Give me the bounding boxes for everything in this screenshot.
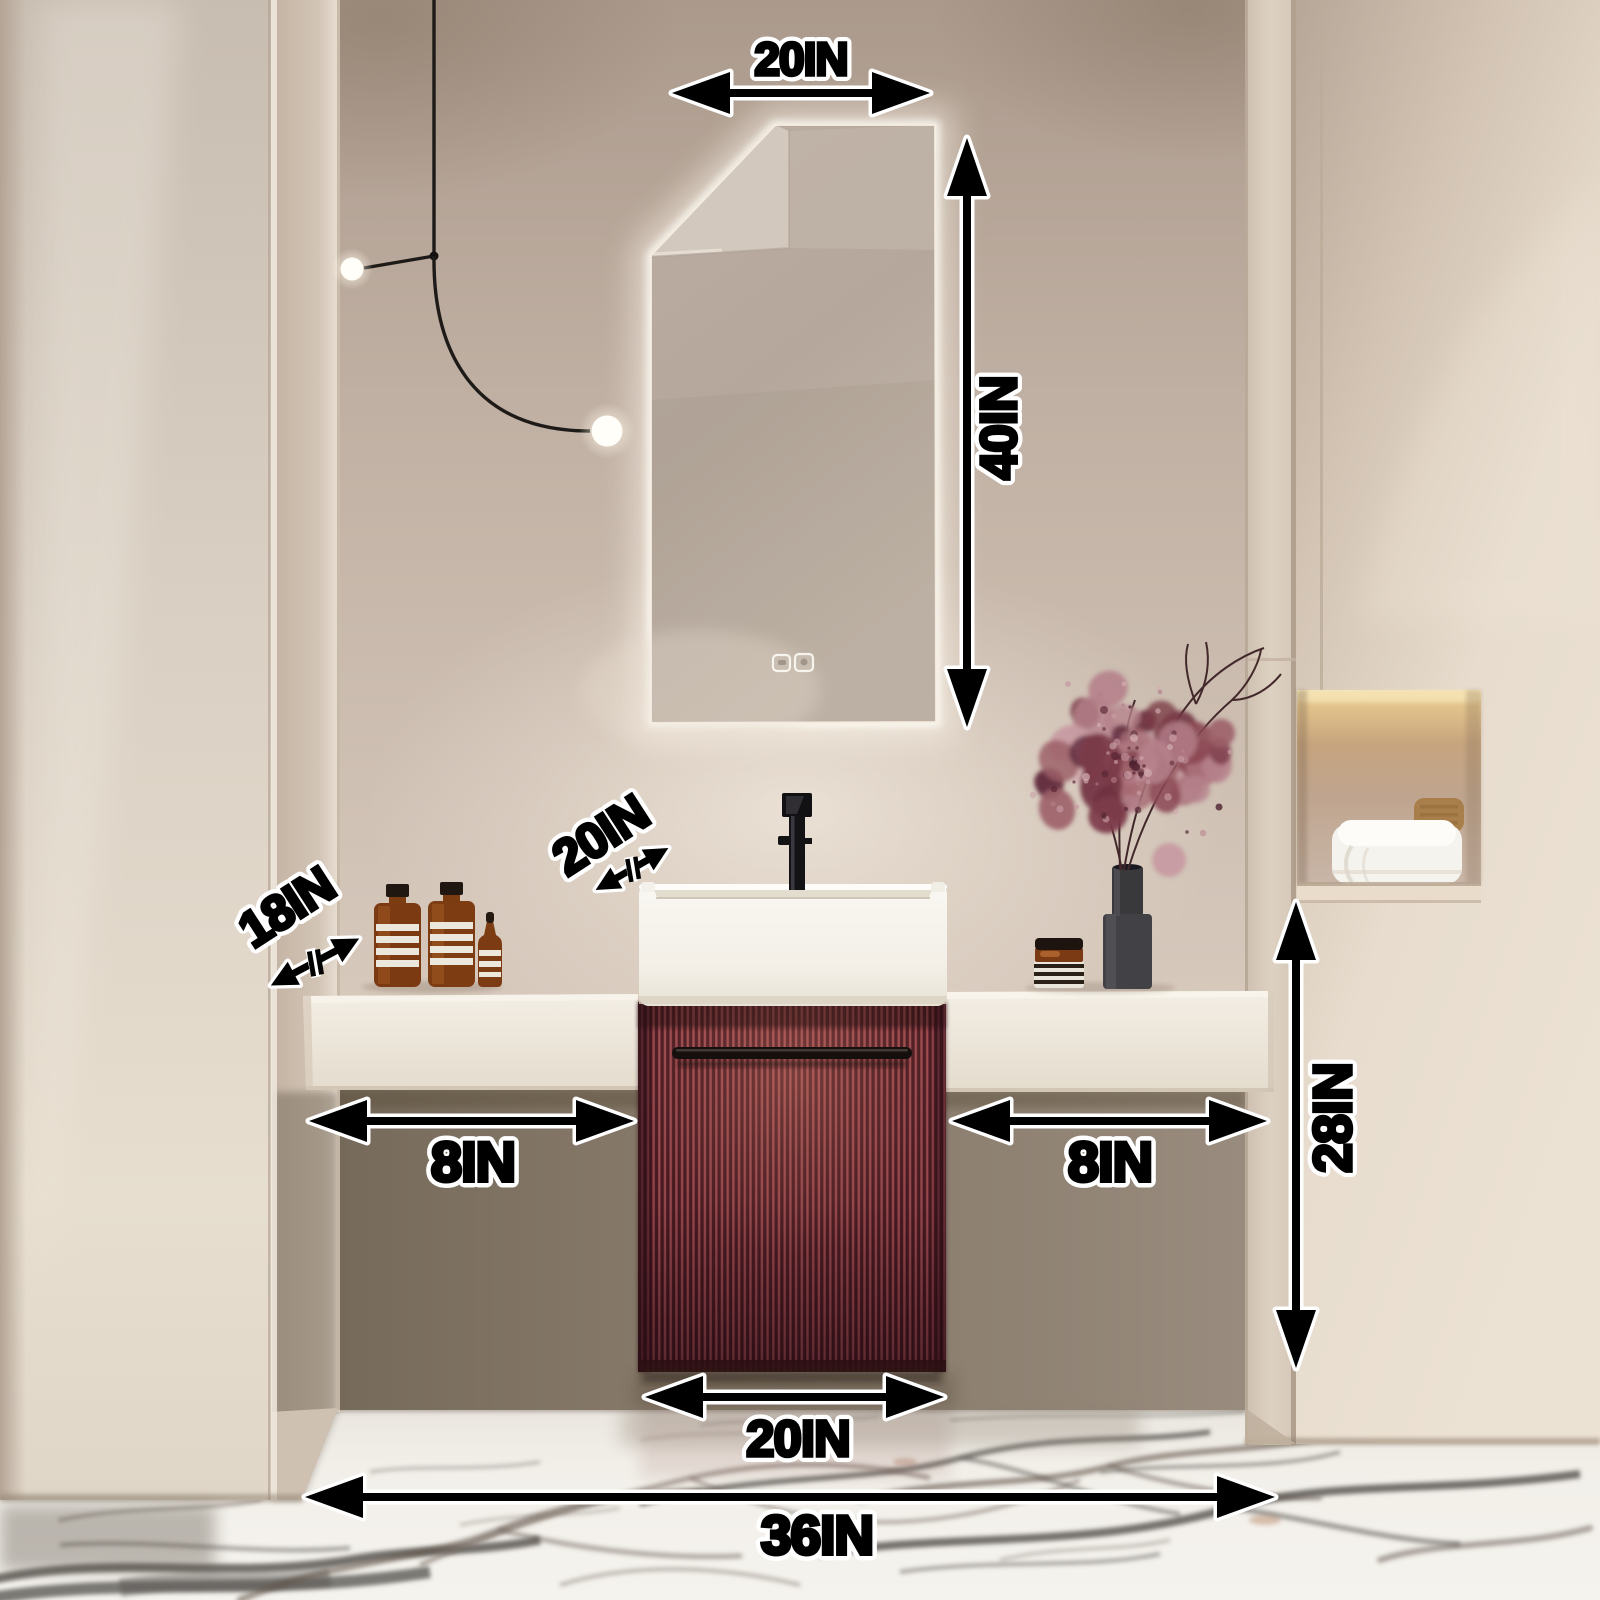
svg-text:8IN: 8IN — [431, 1130, 515, 1193]
svg-text:8IN: 8IN — [1068, 1130, 1152, 1193]
svg-text:28IN: 28IN — [1303, 1063, 1363, 1173]
svg-text:20IN: 20IN — [754, 33, 847, 85]
svg-text:20IN: 20IN — [746, 1410, 850, 1467]
svg-text:36IN: 36IN — [761, 1504, 873, 1566]
svg-text:40IN: 40IN — [970, 376, 1027, 480]
